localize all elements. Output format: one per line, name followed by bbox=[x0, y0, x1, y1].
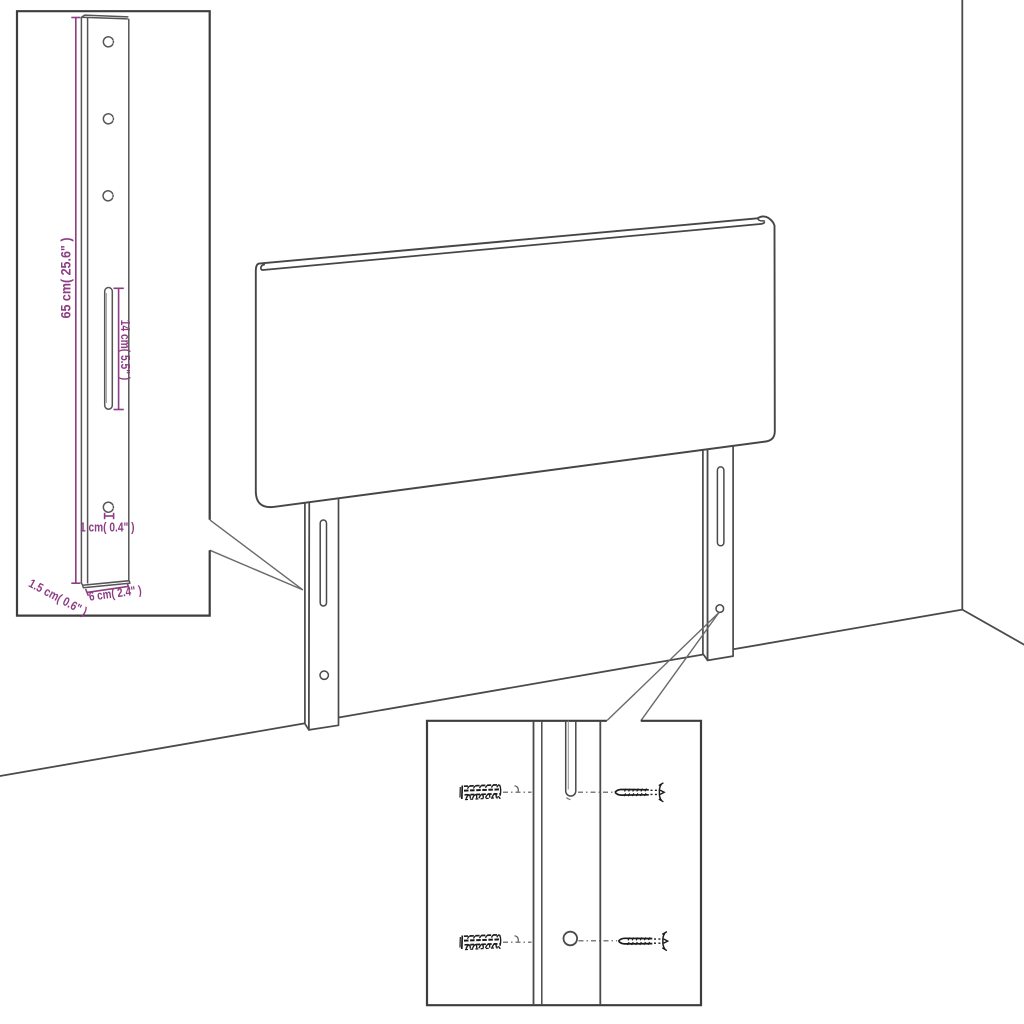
svg-text:1 cm( 0.4" ): 1 cm( 0.4" ) bbox=[80, 521, 135, 535]
svg-text:14 cm( 5.5" ): 14 cm( 5.5" ) bbox=[118, 320, 132, 381]
svg-text:65 cm( 25.6" ): 65 cm( 25.6" ) bbox=[58, 238, 73, 319]
